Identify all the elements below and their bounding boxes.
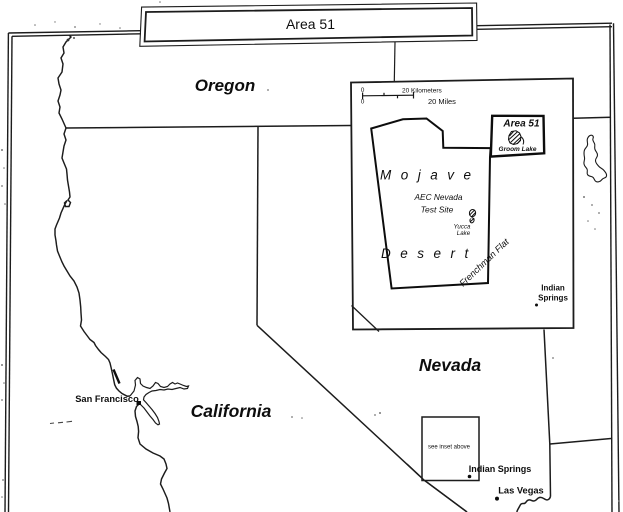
svg-text:Indian: Indian bbox=[541, 284, 565, 293]
svg-text:Groom Lake: Groom Lake bbox=[499, 146, 537, 153]
svg-text:20 Miles: 20 Miles bbox=[428, 97, 456, 106]
svg-text:see inset above: see inset above bbox=[428, 445, 471, 451]
svg-text:Nevada: Nevada bbox=[419, 355, 482, 375]
svg-text:Springs: Springs bbox=[538, 294, 568, 303]
svg-text:AEC Nevada: AEC Nevada bbox=[414, 192, 463, 202]
svg-text:0: 0 bbox=[361, 87, 365, 94]
svg-text:Indian Springs: Indian Springs bbox=[469, 464, 532, 474]
svg-text:San Francisco: San Francisco bbox=[75, 394, 139, 404]
svg-text:Desert: Desert bbox=[381, 246, 478, 261]
svg-text:California: California bbox=[191, 401, 272, 421]
svg-text:Oregon: Oregon bbox=[195, 76, 255, 95]
svg-text:Mojave: Mojave bbox=[380, 168, 481, 183]
svg-text:20 Kilometers: 20 Kilometers bbox=[402, 88, 442, 95]
svg-text:0: 0 bbox=[361, 99, 365, 106]
svg-text:Area 51: Area 51 bbox=[286, 16, 335, 32]
svg-text:Test Site: Test Site bbox=[421, 205, 454, 215]
svg-text:Area 51: Area 51 bbox=[502, 119, 540, 130]
svg-text:Las Vegas: Las Vegas bbox=[498, 486, 543, 496]
svg-text:Lake: Lake bbox=[457, 230, 471, 237]
